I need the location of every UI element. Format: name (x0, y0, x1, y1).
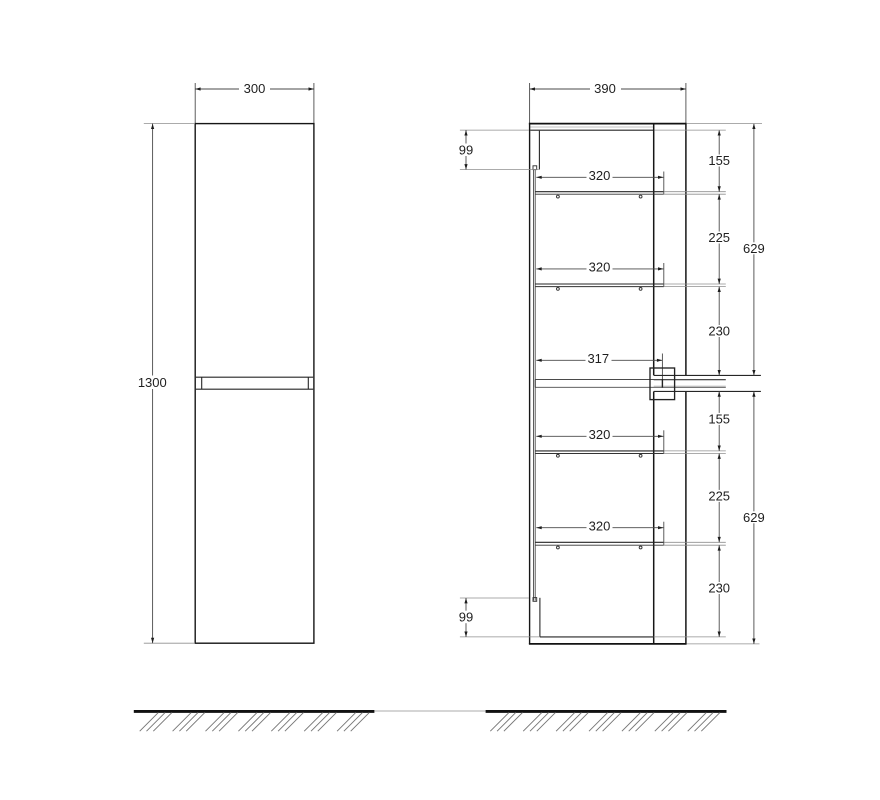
svg-text:320: 320 (589, 260, 611, 275)
svg-text:320: 320 (589, 519, 611, 534)
svg-text:99: 99 (459, 142, 473, 157)
svg-text:300: 300 (244, 81, 266, 96)
svg-text:390: 390 (594, 81, 616, 96)
svg-text:155: 155 (708, 153, 730, 168)
svg-text:629: 629 (743, 510, 765, 525)
svg-text:629: 629 (743, 241, 765, 256)
svg-text:230: 230 (708, 324, 730, 339)
svg-text:1300: 1300 (138, 375, 167, 390)
svg-text:317: 317 (587, 351, 609, 366)
svg-text:155: 155 (708, 412, 730, 427)
svg-text:225: 225 (708, 489, 730, 504)
svg-text:320: 320 (589, 427, 611, 442)
svg-text:225: 225 (708, 230, 730, 245)
svg-text:320: 320 (589, 168, 611, 183)
svg-text:99: 99 (459, 610, 473, 625)
svg-text:230: 230 (708, 581, 730, 596)
